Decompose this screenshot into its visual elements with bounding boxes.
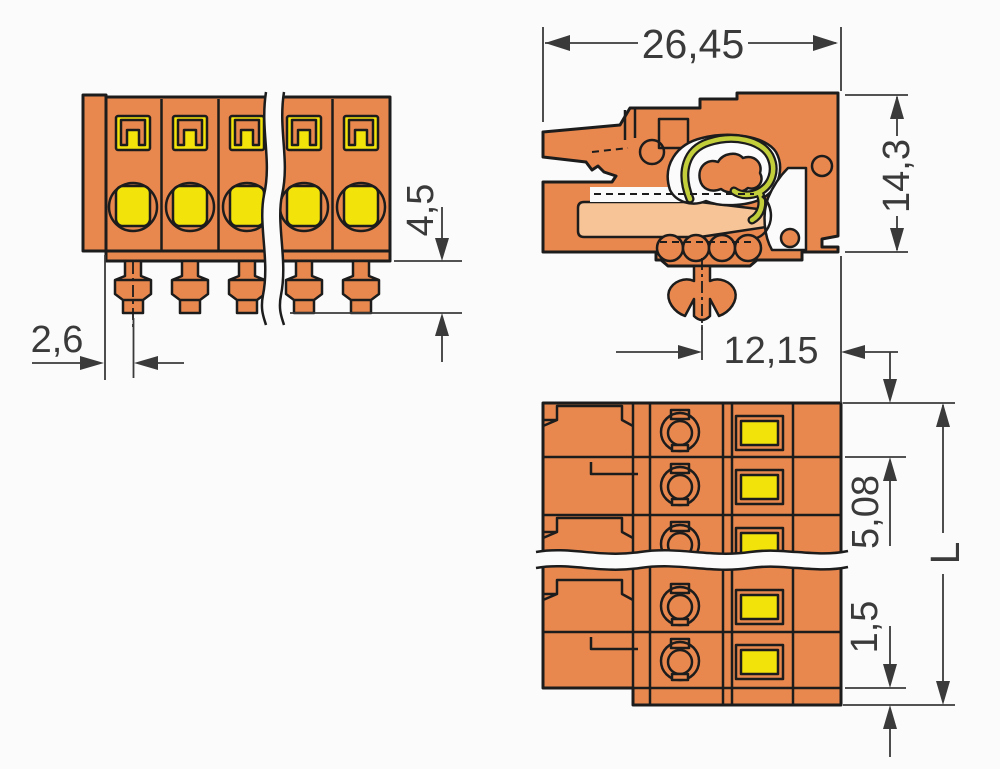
arrowhead: [883, 664, 897, 688]
arrowhead: [80, 356, 104, 370]
bottom-circle: [683, 235, 709, 261]
side-view: [543, 93, 838, 330]
arrowhead: [435, 238, 449, 261]
bottom-circle: [709, 235, 735, 261]
arrowhead: [936, 681, 950, 705]
arrowhead: [435, 313, 449, 336]
terminal-pole: [337, 116, 385, 313]
connector-dimension-drawing: 26,45 14,3 4,5 2,6: [0, 0, 1000, 769]
top-view: [536, 403, 848, 705]
terminal-pole: [280, 116, 328, 313]
arrowhead: [813, 35, 838, 51]
conductor-entry-funnel: [578, 202, 766, 237]
terminal-pole: [109, 116, 157, 313]
dim-label-bottom-step: 1,5: [844, 601, 886, 654]
arrowhead: [545, 35, 570, 51]
terminal-pole: [166, 116, 214, 313]
arrowhead: [883, 705, 897, 729]
arrowhead: [890, 228, 904, 252]
front-view: [83, 92, 390, 330]
dim-label-foot-to-front: 12,15: [723, 330, 818, 372]
dim-overall-height: 14,3: [845, 95, 918, 252]
bottom-circle: [657, 235, 683, 261]
dim-foot-to-front: 12,15: [616, 325, 898, 372]
dim-label-pole-pitch: 5,08: [845, 475, 887, 549]
dim-label-overall-width: 26,45: [642, 21, 745, 67]
test-slot: [659, 119, 688, 148]
dim-pole-pitch: 5,08: [843, 352, 955, 549]
bottom-circle: [735, 235, 761, 261]
arrowhead: [936, 403, 950, 427]
dim-label-edge-to-first-pole: 2,6: [31, 319, 84, 361]
dim-label-overall-height: 14,3: [876, 139, 918, 213]
housing-base-strip: [106, 251, 390, 261]
dim-bottom-step: 1,5: [843, 601, 955, 757]
arrowhead: [841, 345, 865, 359]
dim-label-pin-protrusion: 4,5: [400, 184, 442, 237]
technical-drawing-page: 26,45 14,3 4,5 2,6: [0, 0, 1000, 769]
dim-edge-to-first-pole: 2,6: [31, 255, 184, 380]
channel-circle: [781, 229, 799, 247]
dim-label-total-length: L: [922, 542, 968, 565]
side-flange: [83, 95, 106, 251]
arrowhead: [883, 379, 897, 403]
dim-total-length: L: [922, 403, 968, 705]
arrowhead: [134, 356, 158, 370]
arrowhead: [678, 345, 702, 359]
arrowhead: [890, 95, 904, 119]
